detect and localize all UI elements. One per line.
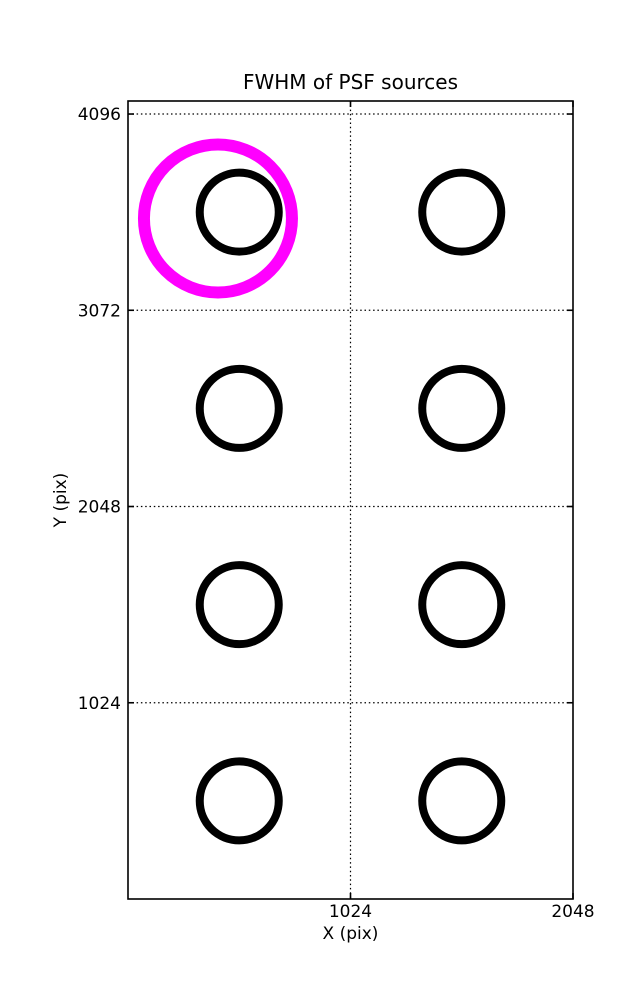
y-tick-label: 2048 <box>78 498 121 518</box>
psf-sources-marker <box>422 761 501 840</box>
x-tick-label: 2048 <box>551 902 594 922</box>
psf-sources-marker <box>200 565 279 644</box>
psf-sources-marker <box>422 565 501 644</box>
chart-title: FWHM of PSF sources <box>128 71 573 93</box>
x-axis-label: X (pix) <box>128 924 573 944</box>
x-tick-label: 1024 <box>329 902 372 922</box>
highlighted-source-marker <box>144 144 292 292</box>
psf-sources-marker <box>422 369 501 448</box>
plot-border <box>128 101 573 899</box>
psf-sources-marker <box>200 369 279 448</box>
y-tick-label: 1024 <box>78 694 121 714</box>
psf-sources-marker <box>422 173 501 252</box>
psf-fwhm-plot: 102420483072409610242048 <box>0 0 637 1000</box>
psf-sources-marker <box>200 173 279 252</box>
psf-sources-marker <box>200 761 279 840</box>
y-tick-label: 3072 <box>78 301 121 321</box>
y-axis-label: Y (pix) <box>51 473 71 528</box>
figure-canvas: 102420483072409610242048 FWHM of PSF sou… <box>0 0 637 1000</box>
y-tick-label: 4096 <box>78 105 121 125</box>
